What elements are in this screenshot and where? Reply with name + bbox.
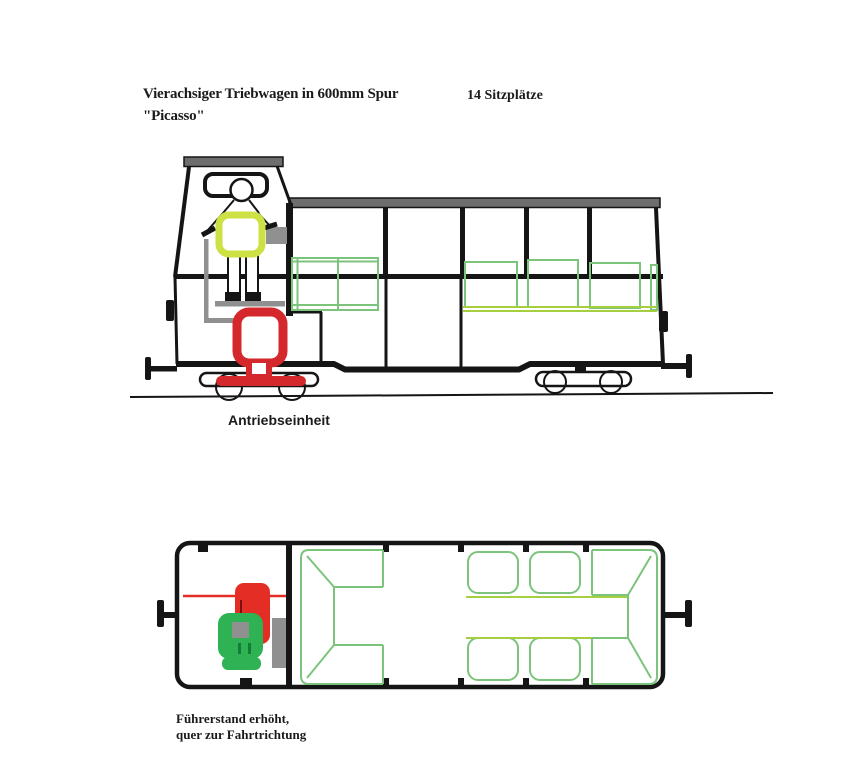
saloon-roof [289,198,660,208]
driver-seat-side [219,215,262,254]
railcar-drawing [0,0,848,768]
window-pillar [383,207,388,277]
rear-grab-handle [659,311,668,332]
title-line1: Vierachsiger Triebwagen in 600mm Spur [143,86,398,103]
driver-foot [245,292,261,301]
control-lever [202,228,215,235]
control-console [266,227,287,244]
cab-note-line2: quer zur Fahrtrichtung [176,727,306,742]
driver-leg [246,252,258,293]
driver-leg [228,252,240,293]
rail-line [130,393,773,397]
seat-headrest [232,622,249,638]
rear-coupler [661,354,692,378]
console-top [272,618,288,668]
drive-unit-label: Antriebseinheit [228,412,330,428]
driver-head [231,179,253,201]
driver-seat-top [218,613,263,670]
cab-note-line1: Führerstand erhöht, [176,711,289,726]
cab-roof [184,157,283,167]
top-view [157,543,692,687]
saloon-seats-side [292,258,657,311]
cab-partition-wall [286,545,292,685]
capacity-note: 14 Sitzplätze [467,88,543,104]
front-coupler [145,357,177,380]
front-grab-handle [166,300,174,321]
driver-foot [225,292,241,301]
cab-floor-platform [215,301,285,307]
diagram-canvas: Vierachsiger Triebwagen in 600mm Spur "P… [0,0,848,768]
top-rear-coupler [661,600,692,627]
title-line2: "Picasso" [143,108,205,125]
side-view [130,157,773,400]
